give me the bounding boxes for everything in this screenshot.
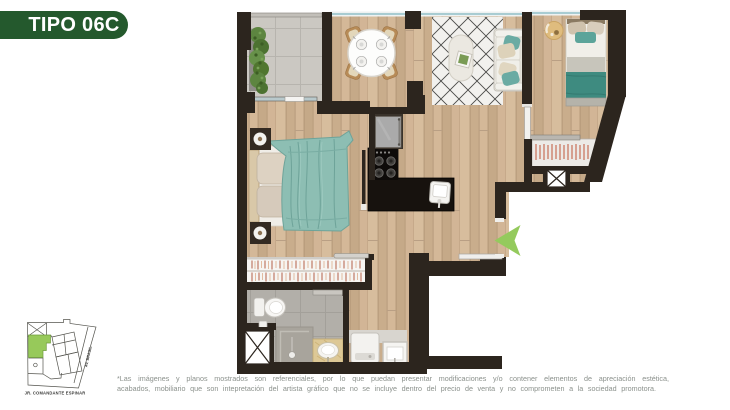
svg-text:AV. BRASIL: AV. BRASIL — [83, 345, 93, 368]
svg-text:JR. COMANDANTE ESPINAR: JR. COMANDANTE ESPINAR — [25, 391, 86, 396]
